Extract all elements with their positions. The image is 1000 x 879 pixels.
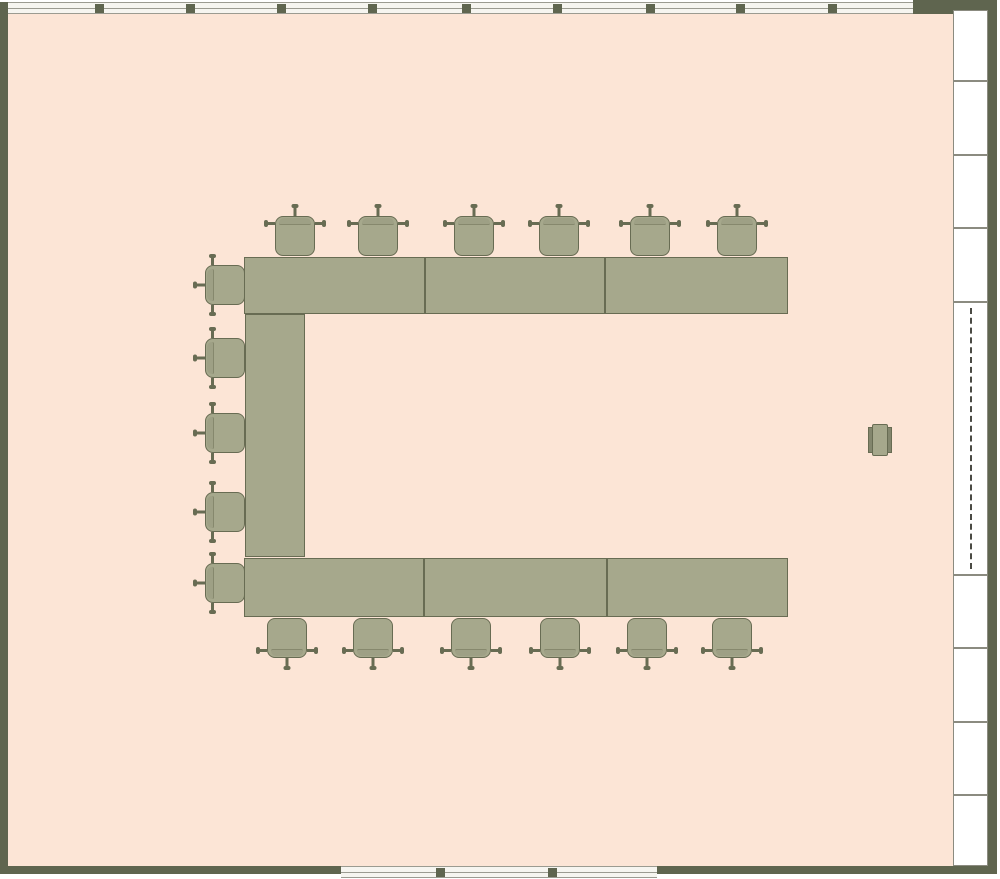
side-chair[interactable] xyxy=(868,424,892,456)
chair-armrest-knob xyxy=(752,649,760,652)
table-top-1[interactable] xyxy=(244,257,425,314)
side-chair-armrest xyxy=(887,427,892,453)
wall-panel-8[interactable] xyxy=(953,795,988,866)
window-band-top xyxy=(8,2,913,14)
chair-backrest xyxy=(362,218,394,225)
chair-backrest xyxy=(544,649,576,656)
chair-armrest-knob xyxy=(494,222,502,225)
chair-armrest-knob xyxy=(345,649,353,652)
chair-armrest-knob xyxy=(649,207,652,216)
wall-panel-7[interactable] xyxy=(953,722,988,795)
chair-armrest-knob xyxy=(559,658,562,667)
office-chair[interactable] xyxy=(539,216,579,256)
chair-armrest-knob xyxy=(211,378,214,386)
chair-armrest-knob xyxy=(211,603,214,611)
chair-armrest-knob xyxy=(580,649,588,652)
chair-armrest-knob xyxy=(372,658,375,667)
chair-armrest-knob xyxy=(731,658,734,667)
wall-right xyxy=(988,0,997,874)
office-chair[interactable] xyxy=(630,216,670,256)
chair-backrest xyxy=(455,649,487,656)
chair-armrest-knob xyxy=(196,432,205,435)
wall-panel-6[interactable] xyxy=(953,648,988,722)
chair-armrest-knob xyxy=(196,284,205,287)
chair-backrest xyxy=(721,218,753,225)
table-left[interactable] xyxy=(245,314,305,557)
chair-armrest-knob xyxy=(757,222,765,225)
chair-armrest-knob xyxy=(532,649,540,652)
chair-armrest-knob xyxy=(211,484,214,492)
chair-armrest-knob xyxy=(646,658,649,667)
wall-left xyxy=(0,2,8,874)
office-chair[interactable] xyxy=(353,618,393,658)
chair-armrest-knob xyxy=(211,305,214,313)
chair-backrest xyxy=(634,218,666,225)
chair-armrest-knob xyxy=(267,222,275,225)
table-top-2[interactable] xyxy=(425,257,605,314)
office-chair[interactable] xyxy=(205,492,245,532)
chair-backrest xyxy=(207,496,214,528)
window-mullion xyxy=(277,4,286,13)
chair-armrest-knob xyxy=(377,207,380,216)
window-mullion xyxy=(548,868,557,877)
sliding-partition[interactable] xyxy=(953,302,988,575)
office-chair[interactable] xyxy=(451,618,491,658)
chair-armrest-knob xyxy=(709,222,717,225)
chair-armrest-knob xyxy=(196,582,205,585)
office-chair[interactable] xyxy=(275,216,315,256)
office-chair[interactable] xyxy=(454,216,494,256)
window-mullion xyxy=(186,4,195,13)
office-chair[interactable] xyxy=(267,618,307,658)
chair-backrest xyxy=(207,567,214,599)
chair-armrest-knob xyxy=(350,222,358,225)
chair-armrest-knob xyxy=(196,357,205,360)
wall-bottom-left xyxy=(0,866,341,874)
window-mullion xyxy=(553,4,562,13)
chair-armrest-knob xyxy=(393,649,401,652)
chair-armrest-knob xyxy=(196,511,205,514)
chair-armrest-knob xyxy=(558,207,561,216)
chair-backrest xyxy=(207,417,214,449)
chair-armrest-knob xyxy=(307,649,315,652)
chair-armrest-knob xyxy=(667,649,675,652)
floorplan-canvas xyxy=(0,0,1000,879)
partition-track-dashed-line xyxy=(970,308,972,569)
office-chair[interactable] xyxy=(205,265,245,305)
chair-armrest-knob xyxy=(286,658,289,667)
wall-panel-5[interactable] xyxy=(953,575,988,648)
chair-armrest-knob xyxy=(211,330,214,338)
chair-backrest xyxy=(271,649,303,656)
wall-panel-4[interactable] xyxy=(953,228,988,302)
wall-panel-3[interactable] xyxy=(953,155,988,228)
chair-backrest xyxy=(543,218,575,225)
chair-armrest-knob xyxy=(211,453,214,461)
chair-armrest-knob xyxy=(491,649,499,652)
chair-armrest-knob xyxy=(211,257,214,265)
office-chair[interactable] xyxy=(717,216,757,256)
chair-armrest-knob xyxy=(531,222,539,225)
chair-armrest-knob xyxy=(704,649,712,652)
chair-backrest xyxy=(357,649,389,656)
chair-backrest xyxy=(207,269,214,301)
chair-backrest xyxy=(279,218,311,225)
wall-panel-1[interactable] xyxy=(953,10,988,81)
chair-armrest-knob xyxy=(398,222,406,225)
window-mullion xyxy=(462,4,471,13)
window-mullion xyxy=(828,4,837,13)
office-chair[interactable] xyxy=(627,618,667,658)
wall-panel-2[interactable] xyxy=(953,81,988,155)
chair-backrest xyxy=(458,218,490,225)
chair-armrest-knob xyxy=(443,649,451,652)
chair-armrest-knob xyxy=(473,207,476,216)
chair-armrest-knob xyxy=(294,207,297,216)
office-chair[interactable] xyxy=(205,563,245,603)
chair-armrest-knob xyxy=(211,532,214,540)
office-chair[interactable] xyxy=(540,618,580,658)
office-chair[interactable] xyxy=(205,413,245,453)
room-floor xyxy=(8,14,953,866)
chair-armrest-knob xyxy=(211,555,214,563)
office-chair[interactable] xyxy=(712,618,752,658)
chair-armrest-knob xyxy=(259,649,267,652)
window-mullion xyxy=(736,4,745,13)
chair-armrest-knob xyxy=(622,222,630,225)
side-chair-seat xyxy=(872,424,888,456)
chair-armrest-knob xyxy=(670,222,678,225)
chair-armrest-knob xyxy=(446,222,454,225)
window-mullion xyxy=(368,4,377,13)
office-chair[interactable] xyxy=(205,338,245,378)
chair-armrest-knob xyxy=(579,222,587,225)
chair-backrest xyxy=(716,649,748,656)
chair-armrest-knob xyxy=(211,405,214,413)
chair-armrest-knob xyxy=(619,649,627,652)
window-glass-line xyxy=(8,8,913,9)
table-top-3[interactable] xyxy=(605,257,788,314)
table-bottom-1[interactable] xyxy=(244,558,424,617)
wall-bottom-right xyxy=(657,866,997,874)
window-mullion xyxy=(646,4,655,13)
chair-armrest-knob xyxy=(470,658,473,667)
table-bottom-2[interactable] xyxy=(424,558,607,617)
office-chair[interactable] xyxy=(358,216,398,256)
window-mullion xyxy=(95,4,104,13)
chair-armrest-knob xyxy=(315,222,323,225)
window-glass-line xyxy=(341,872,657,873)
chair-armrest-knob xyxy=(736,207,739,216)
chair-backrest xyxy=(631,649,663,656)
window-band-bottom xyxy=(341,866,657,878)
table-bottom-3[interactable] xyxy=(607,558,788,617)
window-mullion xyxy=(436,868,445,877)
chair-backrest xyxy=(207,342,214,374)
